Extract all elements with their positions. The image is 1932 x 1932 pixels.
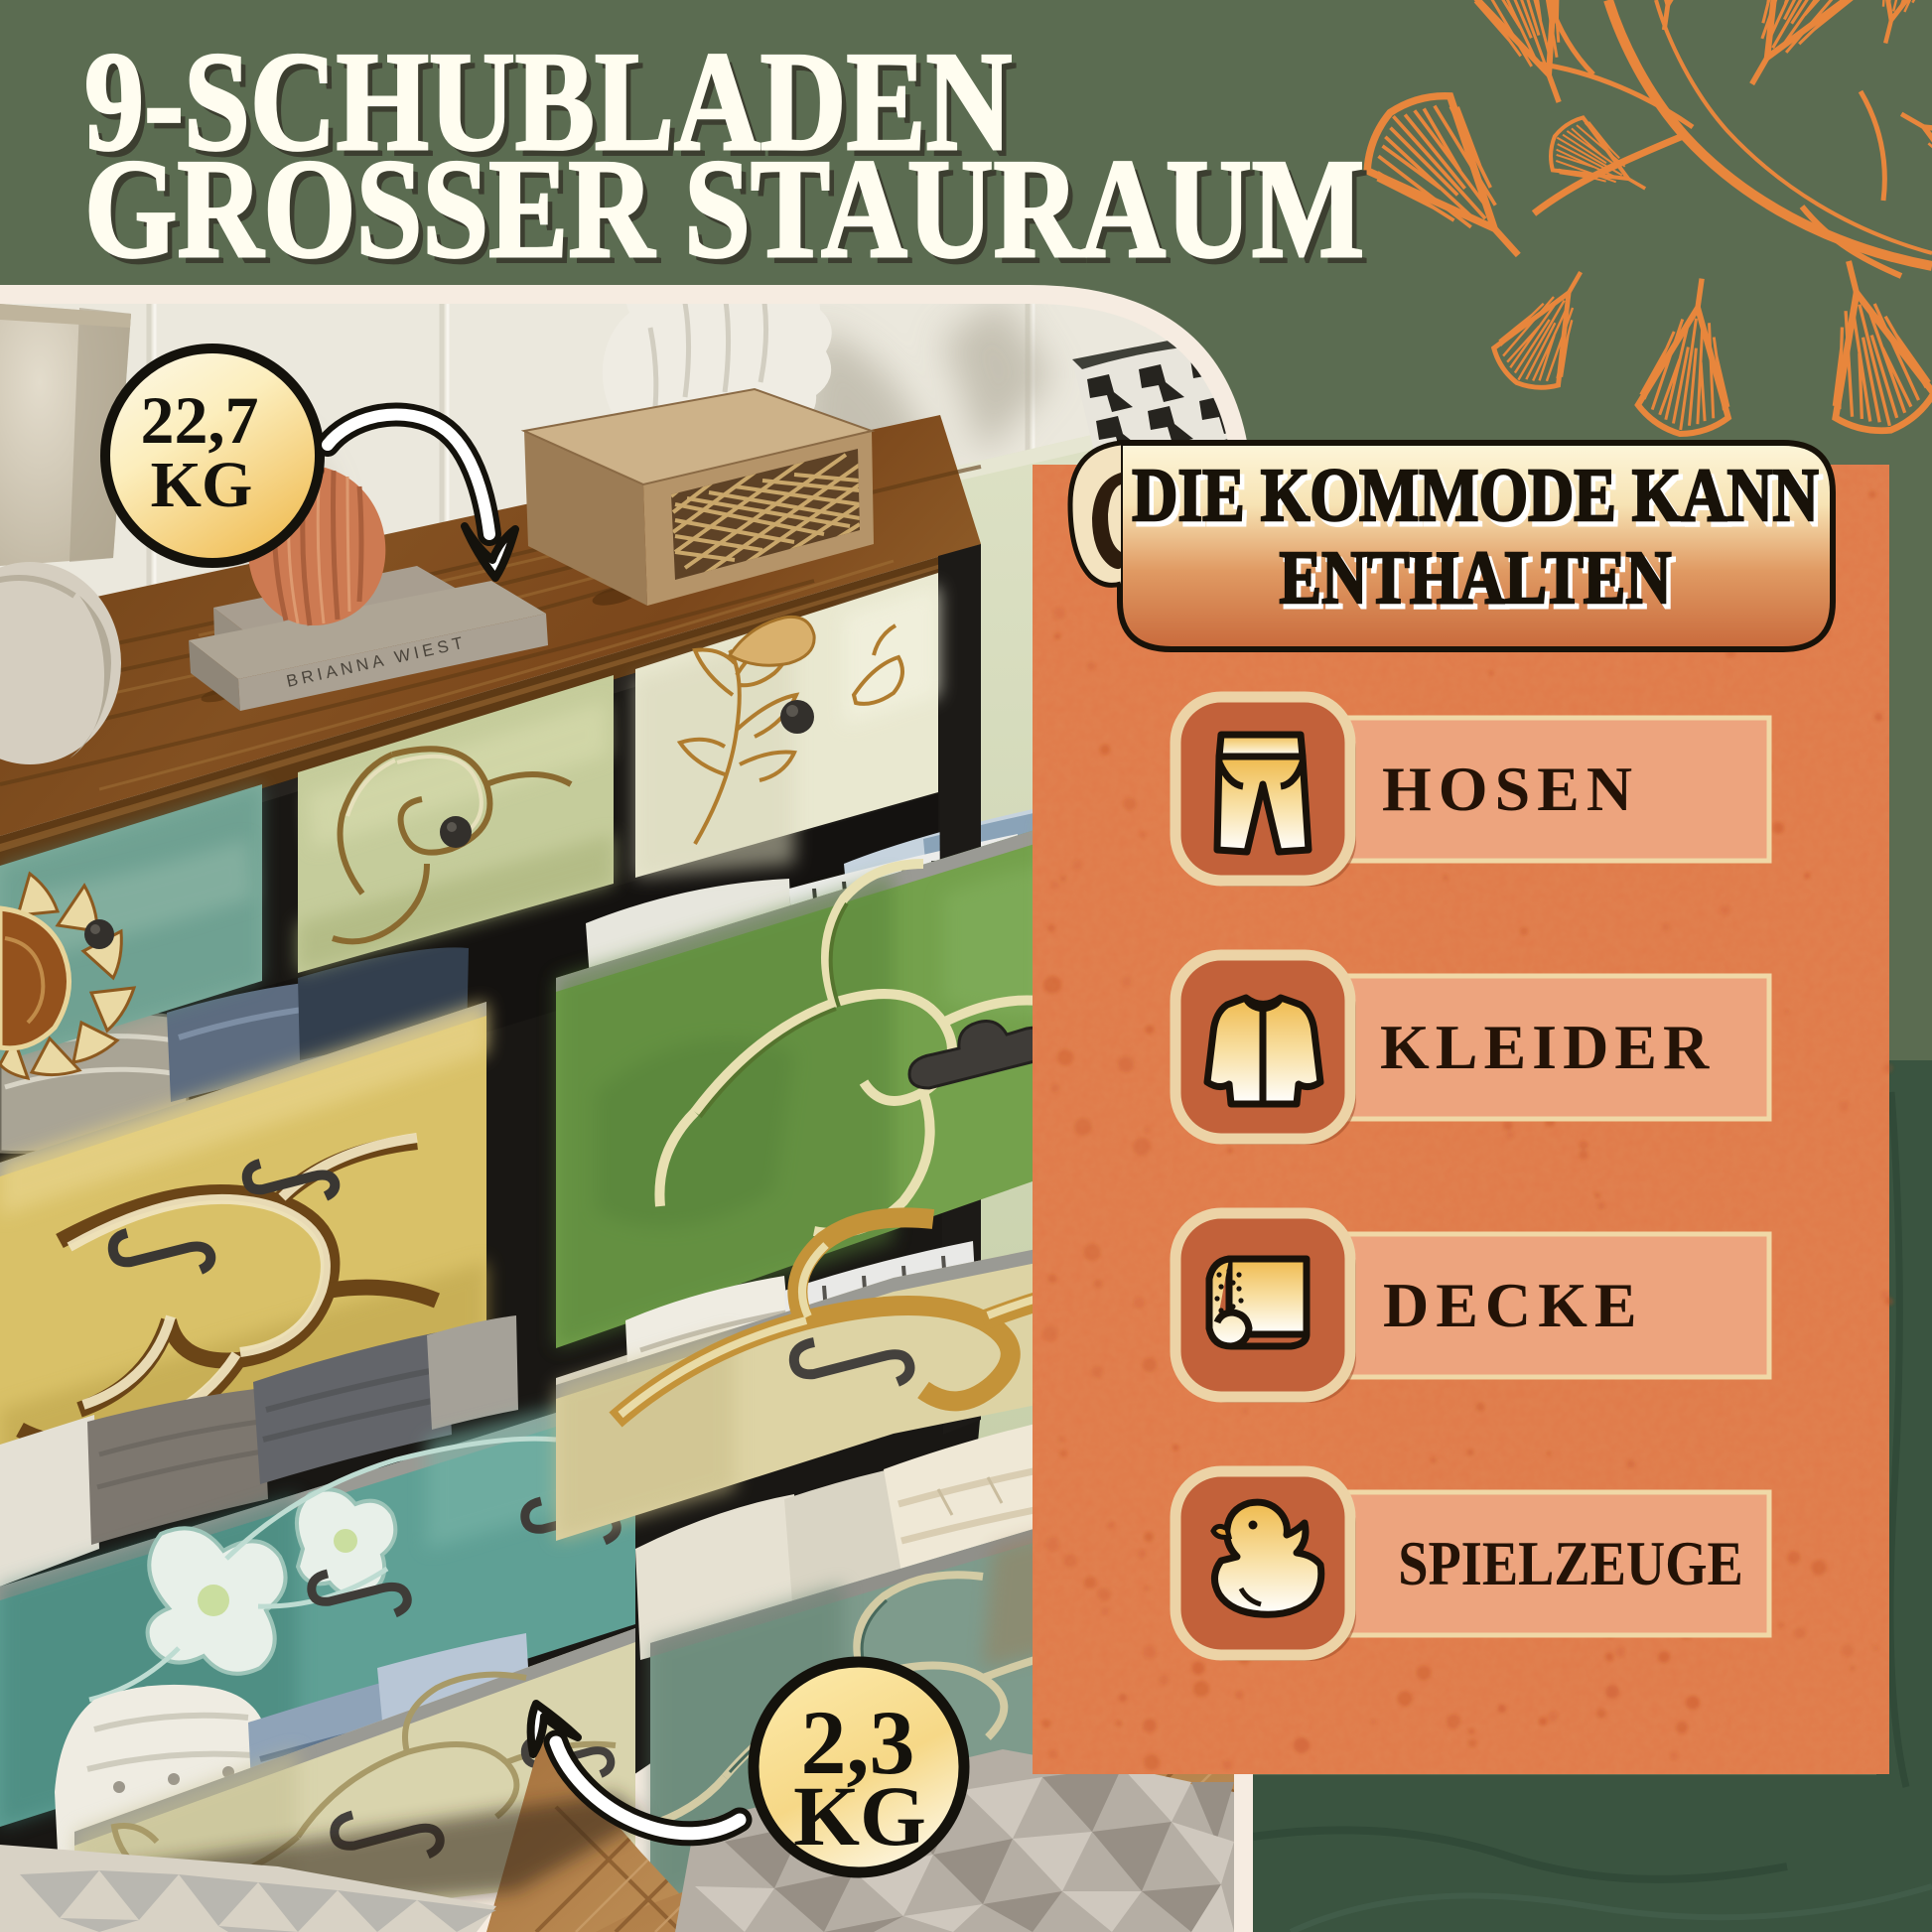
- svg-text:DIE KOMMODE KANN: DIE KOMMODE KANN: [1132, 454, 1818, 537]
- svg-text:GROSSER STAURAUM: GROSSER STAURAUM: [84, 129, 1364, 287]
- svg-text:SPIELZEUGE: SPIELZEUGE: [1398, 1528, 1743, 1598]
- svg-text:KLEIDER: KLEIDER: [1380, 1012, 1715, 1082]
- svg-text:KG: KG: [151, 449, 253, 521]
- svg-text:ENTHALTEN: ENTHALTEN: [1280, 536, 1672, 620]
- svg-text:DECKE: DECKE: [1383, 1270, 1644, 1340]
- svg-text:HOSEN: HOSEN: [1382, 754, 1639, 824]
- svg-text:22,7: 22,7: [141, 382, 259, 458]
- svg-text:KG: KG: [793, 1768, 926, 1863]
